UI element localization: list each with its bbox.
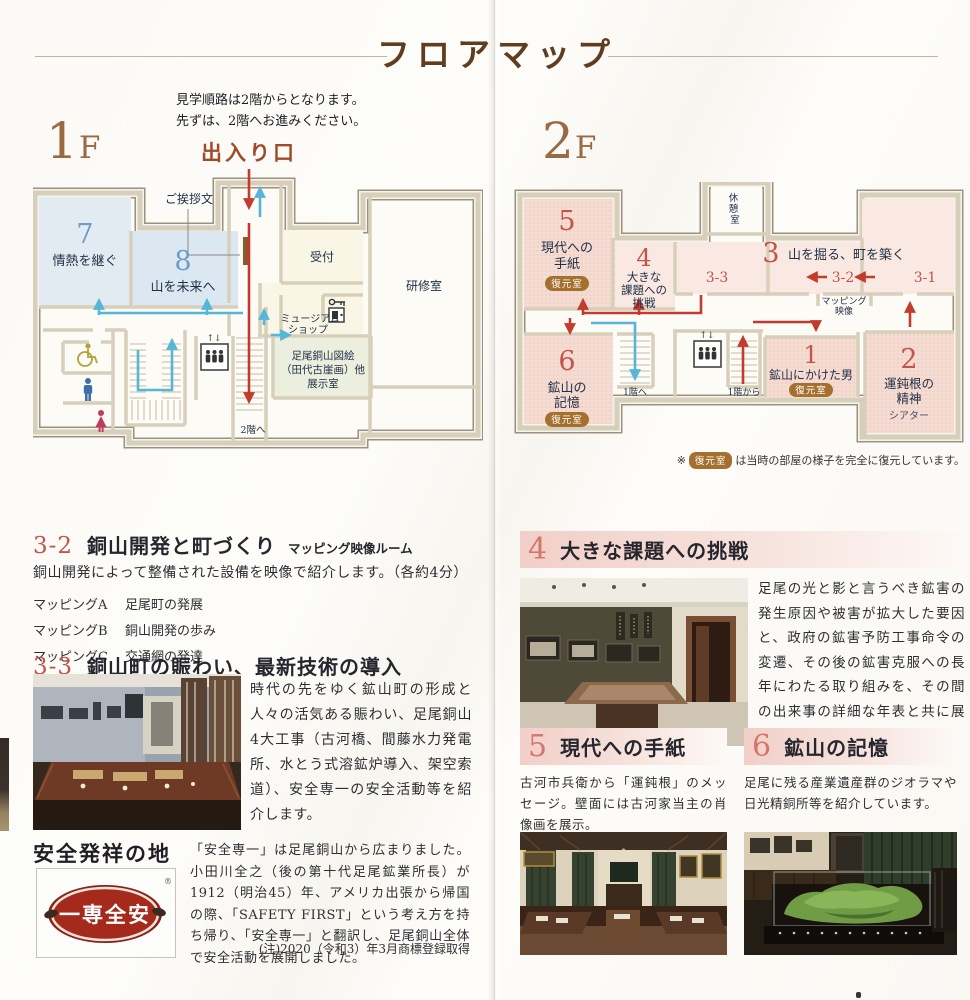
section-4-desc: 足尾の光と影と言うべき鉱害の発生原因や被害が拡大した要因と、政府の鉱害予防工事命…	[758, 577, 965, 749]
section-6-header: 6 鉱山の記憶	[744, 728, 957, 765]
room5-name-2: 手紙	[554, 257, 580, 272]
room4-number: 4	[636, 244, 651, 272]
elevator-arrows: ↑↓	[206, 334, 221, 344]
room5-number: 5	[558, 206, 575, 237]
note-mark: ※	[677, 454, 686, 467]
room2-theater-label: シアター	[889, 410, 929, 422]
room5-restored-badge: 復元室	[545, 276, 589, 291]
room3-number: 3	[762, 238, 779, 269]
room2-number: 2	[900, 344, 917, 375]
room7-area	[39, 197, 131, 307]
section-6-desc: 足尾に残る産業遺産群のジオラマや日光精銅所等を紹介しています。	[744, 772, 957, 814]
floor2-map: ↑↓ 休 憩 室 5	[513, 182, 965, 454]
room1-name: 鉱山にかけた男	[769, 367, 853, 382]
room1-number: 1	[803, 341, 818, 369]
safety-first-logo: 一専全安 ®	[36, 868, 176, 958]
room7-number: 7	[76, 219, 93, 250]
stairs-icon	[130, 400, 181, 420]
section-5-title: 現代への手紙	[560, 732, 686, 761]
restored-room-note: ※復元室は当時の部屋の様子を完全に復元しています。	[600, 452, 965, 469]
from-1f-label: 1階から	[728, 387, 761, 398]
section-6-photo	[744, 832, 957, 955]
floor2-label: 2F	[542, 112, 597, 170]
room6-number: 6	[558, 346, 575, 377]
section-6-number: 6	[752, 729, 771, 765]
mapping-item-a: マッピングA 足尾町の発展	[33, 590, 216, 616]
section-4-number: 4	[528, 532, 547, 568]
greeting-label: ご挨拶文	[165, 191, 213, 206]
room2-name-2: 精神	[896, 391, 921, 406]
room5-name-1: 現代への	[541, 241, 593, 256]
section-5-desc: 古河市兵衛から「運鈍根」のメッセージ。壁面には古河家当主の肖像画を展示。	[520, 772, 727, 835]
room2-name-1: 運鈍根の	[884, 376, 934, 391]
print-speck	[856, 992, 861, 998]
room4-name-2: 課題への	[621, 283, 667, 297]
registered-mark: ®	[164, 877, 172, 886]
mapping-label-2: 映像	[835, 305, 853, 317]
section-3-2-title: 銅山開発と町づくり	[87, 530, 276, 559]
room4-name-1: 大きな	[627, 270, 662, 284]
shop-label-1: ミュージアム	[280, 313, 339, 325]
section-5-header: 5 現代への手紙	[520, 728, 727, 765]
section-5-number: 5	[528, 729, 547, 765]
shop-label-2: ショップ	[288, 324, 328, 336]
svg-text:復元室: 復元室	[795, 385, 827, 397]
room6-restored-badge: 復元室	[545, 412, 589, 427]
exhibit-room-label-2: （田代古崖画）他	[281, 363, 365, 376]
room4-name-3: 挑戦	[633, 296, 656, 310]
svg-text:復元室: 復元室	[551, 414, 583, 426]
room6-name-2: 記憶	[554, 395, 580, 411]
visit-notice: 見学順路は2階からとなります。 先ずは、2階へお進みください。	[176, 90, 366, 132]
fold-crease	[488, 0, 502, 1000]
room6-name-1: 鉱山の	[547, 380, 586, 396]
brochure-page: フロアマップ 見学順路は2階からとなります。 先ずは、2階へお進みください。 1…	[0, 0, 970, 1000]
zone-3-3-label: 3-3	[706, 270, 729, 286]
room8-name: 山を未来へ	[150, 280, 215, 295]
section-5-photo	[520, 832, 727, 955]
greeting-panel-icon	[243, 237, 248, 265]
mapping-label-1: マッピング	[821, 295, 866, 307]
elevator-arrows: ↑↓	[699, 331, 714, 341]
section-4-photo	[520, 578, 748, 746]
section-3-2-desc: 銅山開発によって整備された設備を映像で紹介します。（各約4分）	[33, 562, 473, 582]
exhibit-room-label-3: 展示室	[307, 377, 339, 390]
room8-number: 8	[174, 246, 191, 277]
section-3-3-desc: 時代の先をゆく鉱山町の形成と人々の活気ある賑わい、足尾銅山4大工事（古河橋、間藤…	[250, 678, 472, 828]
title-rule-right	[608, 56, 938, 57]
safety-title: 安全発祥の地	[33, 838, 171, 868]
section-4-title: 大きな課題への挑戦	[560, 535, 749, 564]
room3-name: 山を掘る、町を築く	[788, 248, 905, 263]
visit-notice-line1: 見学順路は2階からとなります。	[176, 90, 366, 111]
visit-notice-line2: 先ずは、2階へお進みください。	[176, 111, 366, 132]
trademark-note: (注)2020（令和3）年3月商標登録取得	[190, 940, 470, 957]
fold-crease-line	[494, 0, 495, 1000]
room3-area-east	[862, 199, 954, 294]
zone-3-1-label: 3-1	[914, 270, 937, 286]
mapping-item-b: マッピングB 銅山開発の歩み	[33, 616, 216, 642]
reception-label: 受付	[310, 250, 334, 264]
to-2f-label: 2階へ	[240, 425, 266, 436]
training-room-label: 研修室	[406, 278, 442, 293]
room1-restored-badge: 復元室	[789, 383, 833, 397]
rest-room-label: 休 憩 室	[729, 192, 742, 226]
zone-3-2-label: 3-2	[832, 270, 855, 286]
to-1f-label: 1階へ	[623, 387, 647, 398]
title-rule-left	[35, 56, 387, 57]
section-3-2-number: 3-2	[33, 533, 73, 559]
section-3-2-header: 3-2 銅山開発と町づくり マッピング映像ルーム	[33, 530, 413, 559]
page-edge-photo-sliver	[0, 738, 9, 831]
restored-badge: 復元室	[689, 452, 733, 469]
note-text: は当時の部屋の様子を完全に復元しています。	[735, 454, 965, 467]
floor1-map: ↑↓	[33, 135, 483, 457]
section-3-2-subtitle: マッピング映像ルーム	[288, 538, 413, 557]
svg-text:復元室: 復元室	[551, 278, 583, 290]
section-3-3-photo	[33, 674, 241, 830]
section-6-title: 鉱山の記憶	[784, 732, 889, 761]
room7-name: 情熱を継ぐ	[52, 254, 117, 269]
safety-logo-text: 一専全安	[59, 902, 151, 927]
exhibit-room-label-1: 足尾銅山図絵	[292, 349, 355, 362]
section-4-header: 4 大きな課題への挑戦	[520, 531, 965, 568]
